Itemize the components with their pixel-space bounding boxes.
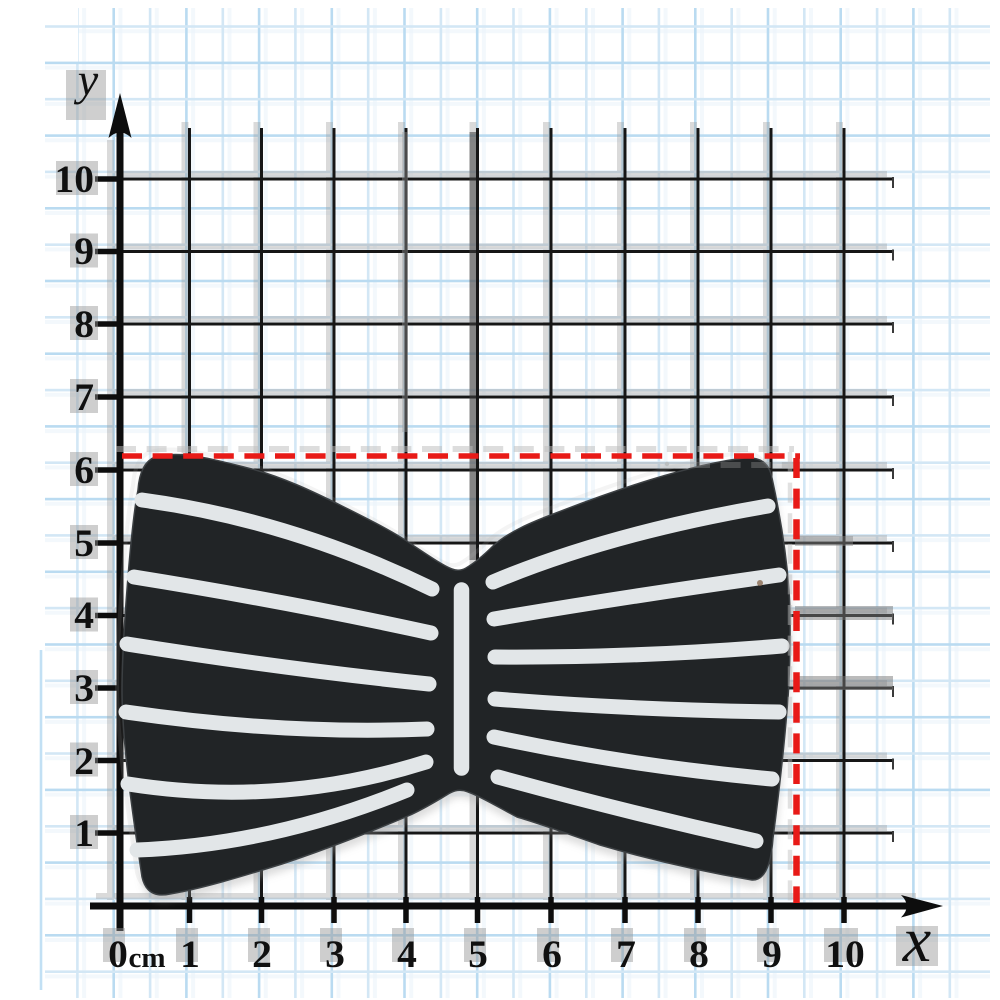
svg-text:8: 8 [689,932,709,976]
svg-text:1: 1 [74,811,94,855]
svg-text:8: 8 [74,302,94,346]
svg-text:cm: cm [129,942,166,974]
svg-text:6: 6 [74,448,94,492]
svg-text:10: 10 [55,157,95,201]
svg-text:5: 5 [74,521,94,565]
svg-text:7: 7 [74,375,94,419]
svg-text:6: 6 [542,932,562,976]
svg-text:7: 7 [616,932,636,976]
svg-text:4: 4 [397,932,417,976]
svg-text:2: 2 [74,739,94,783]
svg-text:0: 0 [108,932,128,976]
svg-text:9: 9 [74,229,94,273]
svg-text:3: 3 [74,666,94,710]
svg-text:10: 10 [825,932,865,976]
svg-text:2: 2 [252,932,272,976]
svg-text:1: 1 [180,932,200,976]
svg-text:x: x [902,904,931,975]
svg-text:5: 5 [468,932,488,976]
svg-text:4: 4 [74,593,94,637]
svg-text:3: 3 [325,932,345,976]
svg-text:9: 9 [762,932,782,976]
svg-text:y: y [74,54,99,105]
